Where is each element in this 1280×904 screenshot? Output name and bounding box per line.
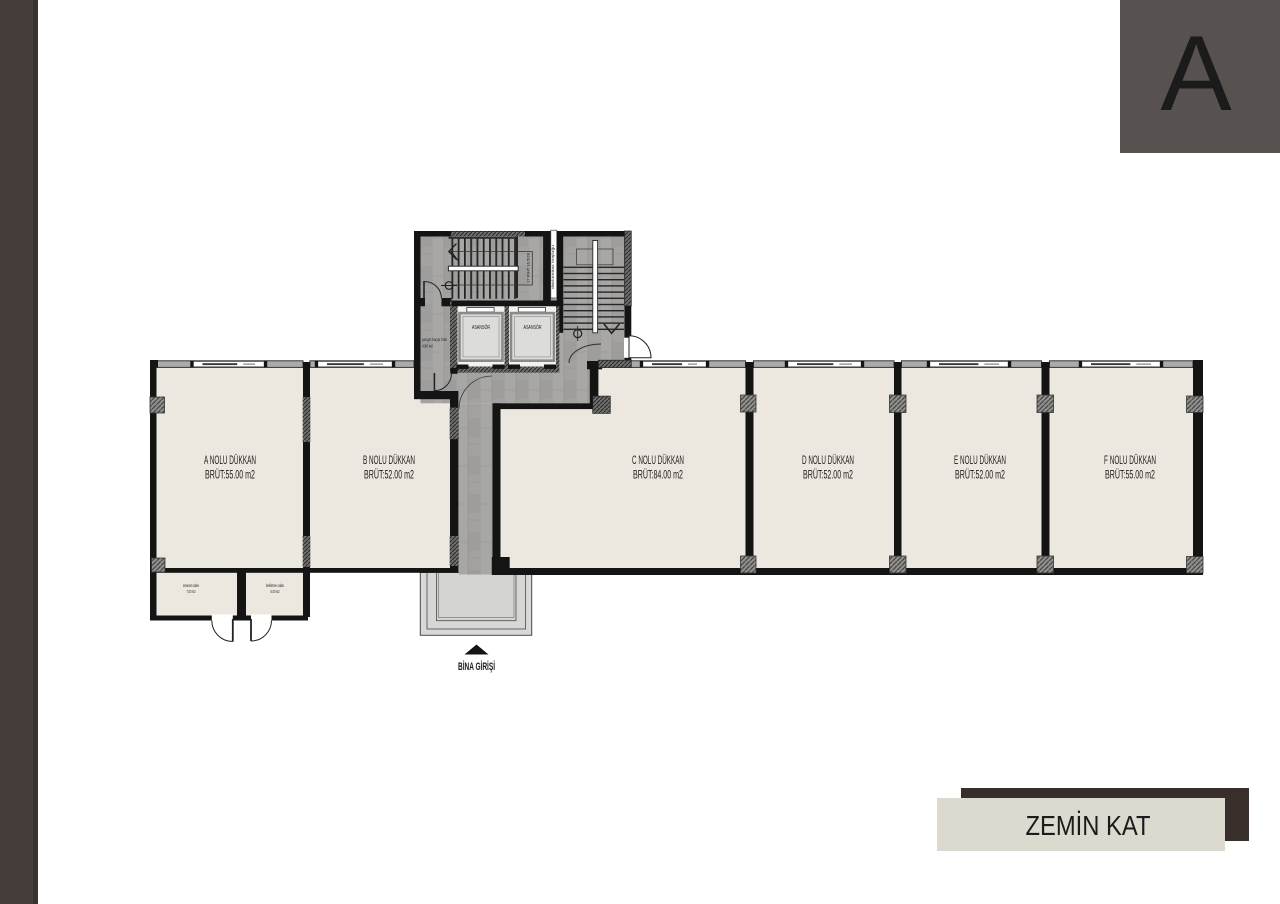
svg-text:BRÜT:52.00 m2: BRÜT:52.00 m2 <box>364 470 414 482</box>
svg-text:emanet odası: emanet odası <box>183 583 199 588</box>
svg-text:6.00 m2: 6.00 m2 <box>271 589 280 594</box>
svg-text:B NOLU DÜKKAN: B NOLU DÜKKAN <box>363 455 415 467</box>
svg-text:ASANSÖR: ASANSÖR <box>472 324 490 331</box>
svg-text:7.00 m2: 7.00 m2 <box>187 589 196 594</box>
svg-text:D NOLU DÜKKAN: D NOLU DÜKKAN <box>802 455 854 467</box>
svg-text:bekletme odası: bekletme odası <box>266 583 284 588</box>
svg-text:4.90 m2: 4.90 m2 <box>422 344 433 349</box>
svg-text:E NOLU DÜKKAN: E NOLU DÜKKAN <box>954 455 1006 467</box>
svg-text:ZEMİN KAT: ZEMİN KAT <box>1026 810 1151 841</box>
svg-text:BRÜT:55.00 m2: BRÜT:55.00 m2 <box>1105 470 1155 482</box>
svg-text:BRÜT:84.00 m2: BRÜT:84.00 m2 <box>633 470 683 482</box>
svg-text:yangın kaçışı holü: yangın kaçışı holü <box>422 337 447 342</box>
svg-text:BİNA GİRİŞİ: BİNA GİRİŞİ <box>458 660 495 673</box>
svg-text:C NOLU DÜKKAN: C NOLU DÜKKAN <box>632 455 684 467</box>
svg-text:BRÜT:55.00 m2: BRÜT:55.00 m2 <box>205 470 255 482</box>
svg-text:BRÜT:52.00 m2: BRÜT:52.00 m2 <box>955 470 1005 482</box>
svg-text:A: A <box>1160 13 1232 133</box>
svg-text:davlumbaz boşluğu: davlumbaz boşluğu <box>551 245 555 289</box>
svg-text:BRÜT:52.00 m2: BRÜT:52.00 m2 <box>803 470 853 482</box>
svg-text:17 RIHT 16.5/28: 17 RIHT 16.5/28 <box>527 253 531 283</box>
svg-text:ASANSÖR: ASANSÖR <box>524 324 542 331</box>
svg-text:F NOLU DÜKKAN: F NOLU DÜKKAN <box>1104 455 1156 467</box>
svg-text:A NOLU DÜKKAN: A NOLU DÜKKAN <box>204 455 256 467</box>
